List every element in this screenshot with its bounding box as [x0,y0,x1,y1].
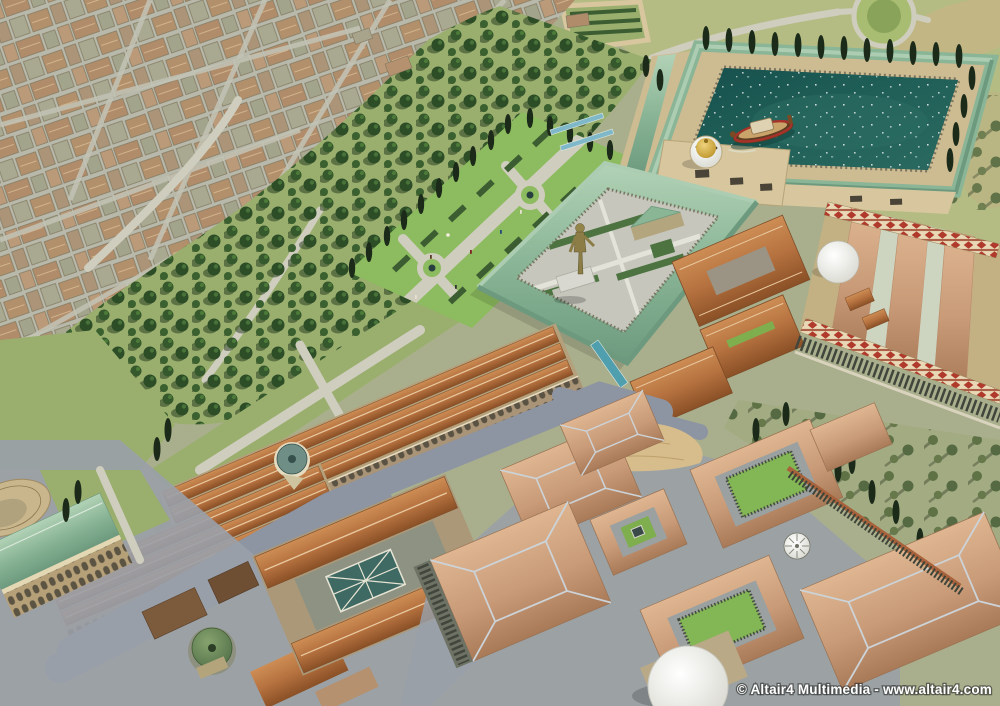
copyright-watermark: © Altair4 Multimedia - www.altair4.com [737,682,992,697]
rome-3d-reconstruction-image: © Altair4 Multimedia - www.altair4.com [0,0,1000,706]
temple-white-dome [817,241,859,283]
ribbed-rotunda [784,533,810,559]
